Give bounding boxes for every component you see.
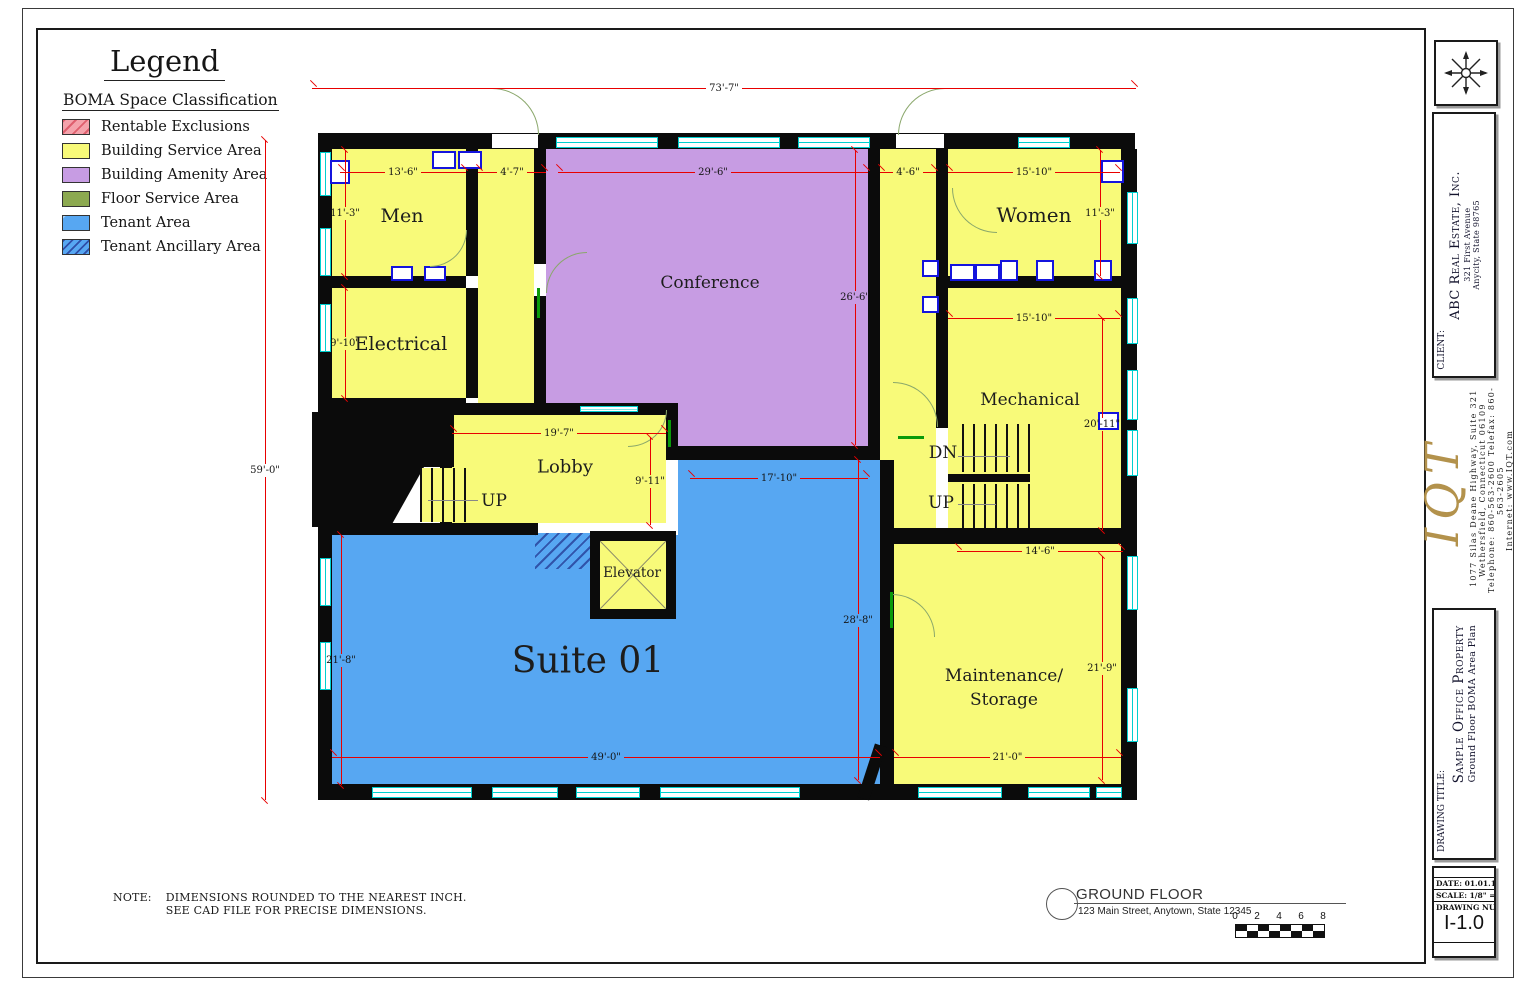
scale-tick: 2 xyxy=(1251,911,1263,922)
wall-electrical-right xyxy=(466,288,478,398)
dim-electrical-height: 9'-10" xyxy=(332,288,358,398)
legend-item-label: Building Amenity Area xyxy=(101,167,267,183)
door-leaf xyxy=(890,592,893,628)
legend-item: Tenant Ancillary Area xyxy=(62,239,279,255)
scale-tick: 8 xyxy=(1317,911,1329,922)
legend-item: Floor Service Area xyxy=(62,191,279,207)
stair-label-up-left: UP xyxy=(481,491,507,511)
dim-men-width: 13'-6" xyxy=(340,166,466,178)
ground-floor-address: 123 Main Street, Anytown, State 12345 xyxy=(1078,906,1251,917)
legend-item-label: Building Service Area xyxy=(101,143,262,159)
door-opening-left xyxy=(492,134,538,148)
firm-block: IQT 1077 Silas Deane Highway, Suite 321 … xyxy=(1428,378,1500,604)
client-name: ABC Real Estate, Inc. xyxy=(1448,171,1463,320)
dim-maintenance-bottom-width: 21'-0" xyxy=(894,751,1121,763)
date-label: DATE: xyxy=(1436,879,1462,888)
wall-conference-bottom xyxy=(666,446,880,460)
wall-suite-top-left xyxy=(318,523,442,535)
scale-label: SCALE: xyxy=(1436,891,1467,900)
room-label-suite-01: Suite 01 xyxy=(512,641,664,682)
swatch-rentable-exclusions xyxy=(62,119,90,135)
legend-item: Rentable Exclusions xyxy=(62,119,279,135)
room-label-women: Women xyxy=(997,203,1072,227)
door-leaf xyxy=(898,436,924,439)
stair-label-up-right: UP xyxy=(928,493,954,513)
scale-bar-row xyxy=(1236,931,1324,937)
firm-address-1: 1077 Silas Deane Highway, Suite 321 xyxy=(1469,378,1478,598)
window xyxy=(1028,787,1090,798)
window xyxy=(556,137,658,148)
north-arrow-box xyxy=(1434,40,1498,106)
drawing-title: Sample Office Property xyxy=(1451,625,1467,783)
dim-maintenance-height: 21'-9" xyxy=(1089,556,1115,780)
window xyxy=(1127,370,1138,420)
toilet-fixture xyxy=(1036,260,1054,281)
drawing-title-label: DRAWING TITLE: xyxy=(1437,770,1447,852)
room-label-elevator: Elevator xyxy=(603,565,661,581)
client-info: ABC Real Estate, Inc. 321 First Avenue A… xyxy=(1448,171,1481,320)
window xyxy=(1127,430,1138,476)
ground-floor-title: GROUND FLOOR xyxy=(1076,886,1203,903)
dim-conference-width: 29'-6" xyxy=(558,166,868,178)
stair-arrow-up xyxy=(958,504,996,505)
window xyxy=(1127,688,1138,742)
legend: Legend BOMA Space Classification Rentabl… xyxy=(62,44,279,263)
swatch-tenant-ancillary xyxy=(62,239,90,255)
firm-logo: IQT xyxy=(1415,378,1469,604)
window xyxy=(492,787,558,798)
wall-conference-left-lower xyxy=(534,296,546,415)
dim-overall-height: 59'-0" xyxy=(252,140,278,800)
dim-suite-left-height: 21'-8" xyxy=(328,535,354,785)
corridor-left xyxy=(478,149,534,415)
window xyxy=(320,228,331,276)
scale-tick: 0 xyxy=(1229,911,1241,922)
firm-address-4: Internet: www.IQT.com xyxy=(1505,378,1514,603)
swatch-building-amenity xyxy=(62,167,90,183)
drawing-subtitle: Ground Floor BOMA Area Plan xyxy=(1467,625,1478,782)
drawing-info-box: DATE: 01.01.10 SCALE: 1/8" = 1'-0" DRAWI… xyxy=(1432,866,1496,958)
date-row: DATE: 01.01.10 xyxy=(1434,878,1494,890)
note: NOTE: DIMENSIONS ROUNDED TO THE NEAREST … xyxy=(113,891,467,917)
wall-stair-divider xyxy=(948,474,1030,482)
ground-floor-underline xyxy=(1074,903,1346,904)
legend-subtitle: BOMA Space Classification xyxy=(62,91,279,111)
room-label-lobby: Lobby xyxy=(537,457,593,478)
drawing-number: I-1.0 xyxy=(1436,912,1492,935)
window xyxy=(1127,556,1138,610)
legend-item-label: Floor Service Area xyxy=(101,191,239,207)
door-opening-right xyxy=(896,134,944,148)
scale-value: 1/8" = 1'-0" xyxy=(1470,891,1494,900)
drawing-title-group: Sample Office Property Ground Floor BOMA… xyxy=(1451,625,1478,783)
stairs-right-up xyxy=(962,484,1030,528)
scale-bar xyxy=(1235,924,1325,938)
stairs-left xyxy=(420,468,474,522)
dim-overall-width: 73'-7" xyxy=(312,82,1136,94)
note-label: NOTE: xyxy=(113,891,152,917)
dim-conference-height: 26'-6" xyxy=(842,150,868,445)
window xyxy=(576,787,640,798)
legend-title: Legend xyxy=(104,44,225,81)
wall-women-left xyxy=(936,149,948,276)
tenant-ancillary-hatch xyxy=(535,533,592,569)
drawing-sheet: Legend BOMA Space Classification Rentabl… xyxy=(0,0,1526,987)
info-spacer xyxy=(1434,868,1494,878)
client-box: ABC Real Estate, Inc. 321 First Avenue A… xyxy=(1432,112,1496,378)
sink-fixture xyxy=(950,264,975,281)
door-leaf xyxy=(668,420,671,447)
legend-item: Building Service Area xyxy=(62,143,279,159)
stair-left-block xyxy=(312,412,454,467)
firm-address-3: Telephone: 860-563-2600 Telefax: 860-563… xyxy=(1487,378,1505,603)
scale-tick: 6 xyxy=(1295,911,1307,922)
swatch-tenant-area xyxy=(62,215,90,231)
fountain-fixture xyxy=(922,296,939,313)
legend-item-label: Tenant Ancillary Area xyxy=(101,239,261,255)
fountain-fixture xyxy=(922,260,939,277)
dim-women-height: 11'-3" xyxy=(1087,150,1113,276)
window xyxy=(372,787,472,798)
dim-mechanical-height: 20'-11" xyxy=(1089,318,1115,530)
door-leaf xyxy=(537,288,540,318)
swatch-floor-service xyxy=(62,191,90,207)
room-label-maintenance: Maintenance/ Storage xyxy=(945,664,1063,712)
client-address-2: Anycity, State 98765 xyxy=(1472,171,1481,319)
date-value: 01.01.10 xyxy=(1465,879,1494,888)
dim-lobby-height: 9'-11" xyxy=(637,437,663,525)
legend-item-label: Tenant Area xyxy=(101,215,191,231)
dim-corridor-right-width: 4'-6" xyxy=(880,166,936,178)
window xyxy=(1018,137,1070,148)
window xyxy=(1127,192,1138,244)
wall-maintenance-top xyxy=(880,528,1121,544)
scale-row: SCALE: 1/8" = 1'-0" xyxy=(1434,890,1494,902)
drawing-number-label: DRAWING NUMBER xyxy=(1436,903,1492,912)
note-lines: DIMENSIONS ROUNDED TO THE NEAREST INCH. … xyxy=(166,891,467,917)
scale-tick: 4 xyxy=(1273,911,1285,922)
dim-lobby-width: 19'-7" xyxy=(452,427,666,439)
room-label-mechanical: Mechanical xyxy=(980,390,1080,410)
legend-item: Tenant Area xyxy=(62,215,279,231)
legend-item-label: Rentable Exclusions xyxy=(101,119,250,135)
room-label-men: Men xyxy=(381,205,424,227)
firm-info: IQT 1077 Silas Deane Highway, Suite 321 … xyxy=(1415,378,1514,604)
dim-men-height: 11'-3" xyxy=(332,150,358,276)
drawing-title-box: Sample Office Property Ground Floor BOMA… xyxy=(1432,608,1496,860)
window xyxy=(1127,298,1138,344)
dim-corridor-left-width: 4'-7" xyxy=(478,166,546,178)
client-label: CLIENT: xyxy=(1437,330,1447,370)
window xyxy=(678,137,780,148)
client-address-1: 321 First Avenue xyxy=(1463,171,1472,319)
stair-label-dn: DN xyxy=(929,443,958,463)
sink-fixture xyxy=(391,266,413,281)
dim-suite-right-height: 28'-8" xyxy=(845,460,871,780)
window xyxy=(1096,787,1122,798)
toilet-fixture xyxy=(1000,260,1018,281)
legend-item: Building Amenity Area xyxy=(62,167,279,183)
stair-arrow-dn xyxy=(958,456,1010,457)
dim-suite-bottom-width: 49'-0" xyxy=(332,751,880,763)
stairs-right-dn xyxy=(962,424,1030,472)
window xyxy=(798,137,870,148)
window xyxy=(660,787,800,798)
swatch-building-service xyxy=(62,143,90,159)
wall-lobby-bottom xyxy=(440,523,538,535)
room-label-conference: Conference xyxy=(660,273,759,293)
sink-fixture xyxy=(975,264,1000,281)
window xyxy=(918,787,1002,798)
number-row: DRAWING NUMBER I-1.0 xyxy=(1434,902,1494,943)
sink-fixture xyxy=(424,266,446,281)
room-label-electrical: Electrical xyxy=(355,333,448,355)
firm-address-2: Wethersfield, Connecticut 06109 xyxy=(1478,378,1487,603)
stair-arrow-left xyxy=(428,500,478,501)
dim-suite-top-width: 17'-10" xyxy=(690,472,868,484)
compass-icon xyxy=(1444,51,1488,95)
